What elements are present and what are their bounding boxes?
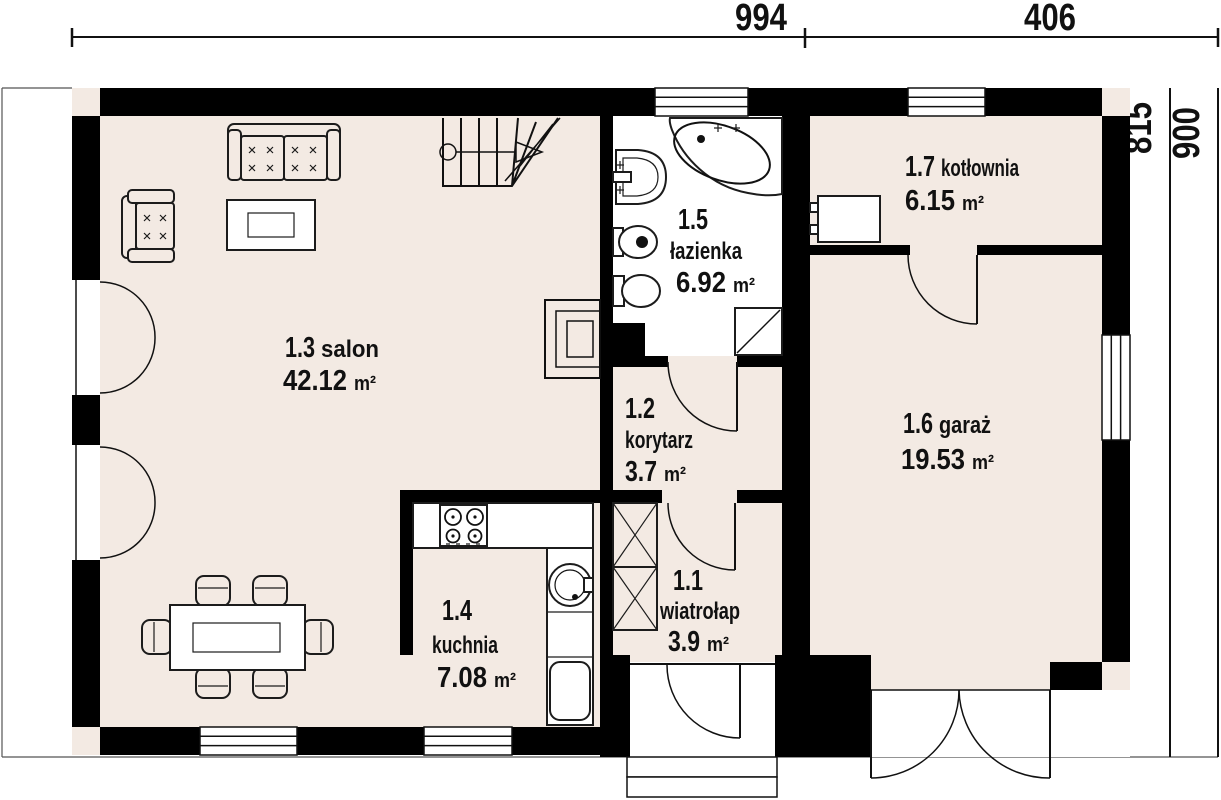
fridge <box>550 662 590 720</box>
room-area: 6.92 <box>676 267 726 299</box>
chair <box>253 668 287 698</box>
coffee-table <box>227 200 315 250</box>
room-area: 3.7 <box>625 456 657 488</box>
floor-plan-drawing: 994 406 815 900 <box>0 0 1221 800</box>
room-area-unit: m² <box>707 634 729 656</box>
room-area: 7.08 <box>437 662 487 694</box>
room-number: 1.4 <box>442 595 472 627</box>
room-area-unit: m² <box>733 275 755 297</box>
dining-table <box>170 605 305 670</box>
room-area-unit: m² <box>354 373 376 395</box>
room-name: kuchnia <box>432 632 498 659</box>
room-name: wiatrołap <box>659 598 740 625</box>
room-area-unit: m² <box>494 670 516 692</box>
chair <box>253 576 287 606</box>
drain <box>697 135 705 143</box>
room-number: 1.1 <box>673 565 703 597</box>
drain <box>572 594 578 600</box>
room-area: 6.15 <box>905 185 955 217</box>
shower <box>735 308 782 355</box>
window-garage-right <box>1102 335 1130 440</box>
garage-forecourt <box>871 690 1130 757</box>
wardrobe <box>613 503 657 630</box>
room-number: 1.6 <box>903 408 933 440</box>
room-number: 1.5 <box>678 204 708 236</box>
bidet <box>613 226 657 258</box>
boiler <box>810 196 880 242</box>
tap <box>584 578 593 592</box>
window-boiler-top <box>908 88 985 116</box>
entry <box>627 662 777 797</box>
room-area: 3.9 <box>668 626 700 658</box>
dimension-top-value-2: 406 <box>1024 0 1076 39</box>
window-salon-bottom <box>200 727 297 755</box>
entry-alcove <box>630 662 775 757</box>
chair <box>303 620 333 654</box>
stove <box>440 505 487 546</box>
dimension-top-value-1: 994 <box>735 0 787 39</box>
window-kitchen-bottom <box>424 727 512 755</box>
dimension-top: 994 406 <box>72 0 1218 48</box>
floor-plan-page: 994 406 815 900 <box>0 0 1221 800</box>
room-area-unit: m² <box>972 452 994 474</box>
chair <box>196 576 230 606</box>
window-bathroom-top <box>655 88 748 116</box>
tap <box>613 172 631 182</box>
entry-step <box>627 777 777 797</box>
room-number: 1.3 <box>285 332 315 364</box>
dimension-right: 815 900 <box>1118 88 1218 757</box>
room-name: kotłownia <box>941 155 1019 182</box>
room-number: 1.2 <box>625 393 655 425</box>
room-area-unit: m² <box>664 464 686 486</box>
room-name: salon <box>321 336 379 363</box>
chair <box>196 668 230 698</box>
room-name: łazienka <box>670 238 742 265</box>
chair <box>142 620 172 654</box>
entry-step <box>627 757 777 777</box>
sofa <box>228 124 340 180</box>
dimension-right-value-2: 900 <box>1166 107 1208 159</box>
room-name: garaż <box>939 412 991 439</box>
toilet <box>613 275 660 307</box>
washbasin <box>613 150 666 204</box>
room-area: 19.53 <box>901 444 965 476</box>
armchair <box>122 190 174 262</box>
room-area-unit: m² <box>962 193 984 215</box>
room-name: korytarz <box>625 427 693 454</box>
room-area: 42.12 <box>283 365 347 397</box>
room-number: 1.7 <box>905 151 935 183</box>
